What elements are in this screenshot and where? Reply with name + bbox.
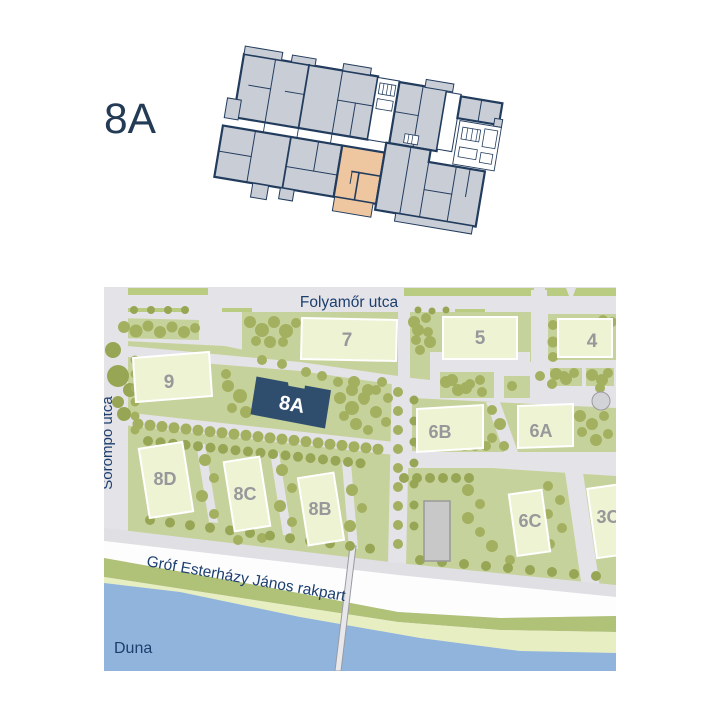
svg-text:Folyamőr utca: Folyamőr utca — [300, 294, 399, 311]
svg-text:5: 5 — [475, 328, 486, 349]
svg-text:8A: 8A — [104, 96, 157, 143]
svg-text:8B: 8B — [308, 499, 331, 519]
svg-text:Duna: Duna — [114, 640, 152, 657]
svg-text:6B: 6B — [428, 422, 451, 442]
svg-text:9: 9 — [164, 372, 175, 393]
svg-text:6C: 6C — [518, 511, 541, 531]
svg-text:8C: 8C — [233, 484, 256, 504]
svg-text:4: 4 — [587, 331, 598, 352]
svg-text:7: 7 — [342, 330, 353, 351]
svg-text:8D: 8D — [153, 469, 176, 489]
svg-text:3C: 3C — [596, 507, 619, 527]
svg-text:6A: 6A — [529, 421, 552, 441]
svg-text:8A: 8A — [277, 392, 306, 418]
svg-text:Sorompó utca: Sorompó utca — [99, 396, 116, 490]
